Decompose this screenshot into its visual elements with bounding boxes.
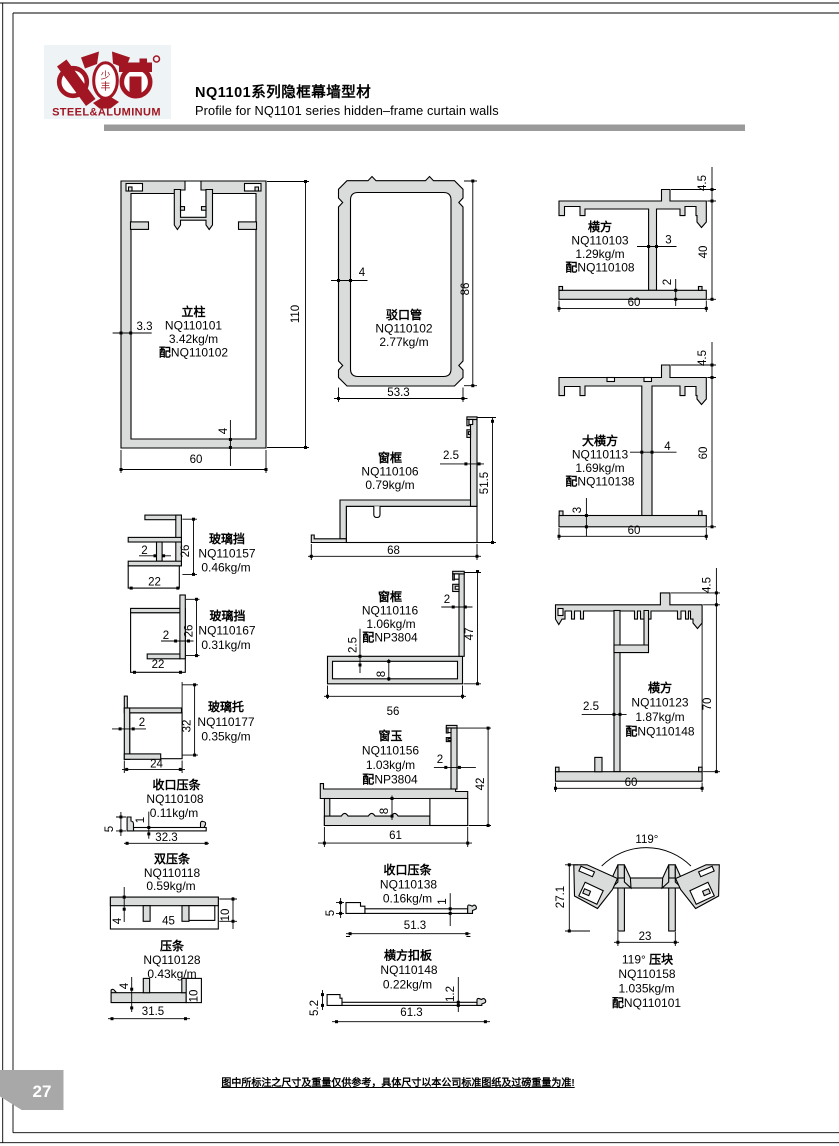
- svg-text:窗玉: 窗玉: [378, 728, 402, 743]
- svg-text:2: 2: [163, 630, 169, 642]
- svg-text:3.3: 3.3: [137, 321, 153, 333]
- svg-text:配NP3804: 配NP3804: [362, 630, 418, 645]
- svg-text:配NP3804: 配NP3804: [362, 772, 418, 787]
- svg-text:4.5: 4.5: [697, 175, 709, 191]
- svg-text:0.31kg/m: 0.31kg/m: [201, 638, 250, 652]
- svg-text:NQ110177: NQ110177: [197, 715, 254, 729]
- svg-text:驳口管: 驳口管: [386, 307, 422, 322]
- svg-text:119°: 119°: [635, 834, 658, 846]
- svg-text:47: 47: [464, 628, 476, 641]
- svg-text:1.2: 1.2: [445, 986, 457, 1002]
- svg-text:27: 27: [33, 1082, 52, 1101]
- svg-text:0.35kg/m: 0.35kg/m: [201, 730, 250, 744]
- svg-text:60: 60: [698, 447, 710, 460]
- svg-text:22: 22: [152, 659, 165, 671]
- svg-text:8: 8: [379, 808, 391, 814]
- svg-text:3: 3: [665, 235, 671, 247]
- svg-text:1.87kg/m: 1.87kg/m: [635, 710, 684, 724]
- svg-text:1: 1: [135, 817, 147, 823]
- svg-text:NQ110103: NQ110103: [571, 234, 628, 248]
- svg-text:0.22kg/m: 0.22kg/m: [383, 978, 432, 992]
- svg-text:51.3: 51.3: [404, 920, 426, 932]
- svg-text:横方扣板: 横方扣板: [384, 948, 433, 963]
- svg-text:NQ110108: NQ110108: [146, 792, 203, 806]
- svg-text:配NQ110108: 配NQ110108: [565, 260, 634, 275]
- svg-text:2.5: 2.5: [583, 701, 599, 713]
- svg-text:70: 70: [702, 698, 714, 711]
- svg-text:2.77kg/m: 2.77kg/m: [379, 335, 428, 349]
- svg-text:119° 压块: 119° 压块: [622, 952, 674, 967]
- svg-text:0.59kg/m: 0.59kg/m: [146, 879, 195, 893]
- svg-text:68: 68: [387, 545, 400, 557]
- svg-text:60: 60: [628, 297, 641, 309]
- svg-text:60: 60: [625, 777, 638, 789]
- svg-text:1: 1: [437, 898, 449, 904]
- svg-text:NQ110106: NQ110106: [361, 465, 418, 479]
- svg-text:图中所标注之尺寸及重量仅供参考，具体尺寸以本公司标准图纸及过: 图中所标注之尺寸及重量仅供参考，具体尺寸以本公司标准图纸及过磅重量为准!: [221, 1076, 574, 1089]
- svg-text:45: 45: [162, 916, 175, 928]
- svg-text:0.79kg/m: 0.79kg/m: [365, 478, 414, 492]
- svg-text:配NQ110148: 配NQ110148: [625, 724, 694, 739]
- svg-text:丰: 丰: [101, 80, 111, 93]
- svg-text:3: 3: [572, 507, 584, 513]
- svg-text:配NQ110138: 配NQ110138: [565, 474, 634, 489]
- svg-text:NQ110118: NQ110118: [144, 866, 201, 880]
- svg-text:1.035kg/m: 1.035kg/m: [618, 982, 674, 996]
- svg-text:61.3: 61.3: [400, 1007, 422, 1019]
- svg-text:1.29kg/m: 1.29kg/m: [575, 247, 624, 261]
- svg-text:3.42kg/m: 3.42kg/m: [169, 332, 218, 346]
- svg-text:玻璃挡: 玻璃挡: [209, 531, 245, 546]
- svg-text:NQ110167: NQ110167: [198, 624, 255, 638]
- svg-text:40: 40: [698, 246, 710, 259]
- svg-text:0.16kg/m: 0.16kg/m: [383, 892, 432, 906]
- svg-text:10: 10: [189, 990, 201, 1003]
- svg-text:4.5: 4.5: [697, 350, 709, 366]
- svg-text:27.1: 27.1: [555, 886, 567, 908]
- svg-text:4: 4: [359, 267, 366, 279]
- svg-text:56: 56: [387, 706, 400, 718]
- svg-text:61: 61: [389, 830, 402, 842]
- svg-text:22: 22: [148, 577, 161, 589]
- svg-text:NQ110116: NQ110116: [362, 604, 419, 618]
- svg-text:收口压条: 收口压条: [383, 862, 432, 877]
- svg-text:26: 26: [184, 625, 196, 638]
- svg-text:2: 2: [437, 754, 443, 766]
- svg-text:2.5: 2.5: [443, 450, 459, 462]
- svg-text:2: 2: [141, 545, 147, 557]
- svg-text:60: 60: [190, 454, 203, 466]
- svg-text:STEEL&ALUMINUM: STEEL&ALUMINUM: [52, 107, 161, 119]
- svg-text:5: 5: [104, 826, 116, 832]
- svg-text:4: 4: [218, 427, 230, 434]
- svg-text:32.3: 32.3: [155, 832, 177, 844]
- svg-text:NQ110157: NQ110157: [198, 547, 255, 561]
- svg-text:双压条: 双压条: [154, 851, 191, 866]
- svg-text:0.46kg/m: 0.46kg/m: [201, 561, 250, 575]
- svg-text:NQ110138: NQ110138: [380, 878, 437, 892]
- svg-text:1.03kg/m: 1.03kg/m: [366, 758, 415, 772]
- svg-text:31.5: 31.5: [142, 1006, 164, 1018]
- svg-text:NQ110128: NQ110128: [143, 953, 200, 967]
- svg-text:配NQ110102: 配NQ110102: [159, 345, 228, 360]
- svg-text:51.5: 51.5: [479, 472, 491, 494]
- svg-text:窗框: 窗框: [378, 450, 402, 465]
- svg-text:NQ1101系列隐框幕墙型材: NQ1101系列隐框幕墙型材: [195, 83, 371, 101]
- svg-text:收口压条: 收口压条: [152, 777, 201, 792]
- svg-text:横方: 横方: [648, 680, 672, 695]
- svg-text:窗框: 窗框: [378, 589, 402, 604]
- svg-text:0.11kg/m: 0.11kg/m: [150, 806, 198, 820]
- svg-text:4.5: 4.5: [702, 577, 714, 593]
- svg-text:2: 2: [662, 279, 674, 285]
- svg-text:配NQ110101: 配NQ110101: [612, 995, 681, 1010]
- svg-text:86: 86: [460, 283, 472, 296]
- svg-text:Profile for NQ1101 series hidd: Profile for NQ1101 series hidden–frame c…: [195, 103, 499, 118]
- svg-text:8: 8: [376, 671, 388, 677]
- svg-text:横方: 横方: [588, 219, 612, 234]
- svg-text:玻璃挡: 玻璃挡: [209, 608, 245, 623]
- svg-text:2.5: 2.5: [348, 637, 360, 653]
- svg-text:10: 10: [220, 909, 232, 922]
- svg-text:玻璃托: 玻璃托: [208, 699, 244, 714]
- svg-text:NQ110101: NQ110101: [165, 319, 222, 333]
- svg-text:4: 4: [664, 441, 671, 453]
- svg-text:5.2: 5.2: [309, 1000, 321, 1016]
- svg-text:5: 5: [325, 910, 337, 916]
- svg-text:NQ110158: NQ110158: [618, 967, 675, 981]
- svg-text:NQ110123: NQ110123: [631, 696, 688, 710]
- svg-text:26: 26: [180, 545, 192, 558]
- svg-text:1.69kg/m: 1.69kg/m: [575, 461, 624, 475]
- svg-text:32: 32: [182, 720, 194, 733]
- svg-text:立柱: 立柱: [181, 304, 205, 319]
- svg-text:24: 24: [150, 759, 163, 771]
- svg-text:大横方: 大横方: [582, 433, 618, 448]
- svg-text:42: 42: [475, 778, 487, 791]
- svg-text:4: 4: [112, 917, 124, 924]
- svg-text:NQ110148: NQ110148: [380, 963, 437, 977]
- svg-text:1.06kg/m: 1.06kg/m: [366, 617, 415, 631]
- svg-text:NQ110156: NQ110156: [362, 744, 419, 758]
- svg-text:2: 2: [139, 717, 145, 729]
- svg-text:2: 2: [444, 594, 450, 606]
- svg-text:110: 110: [290, 305, 302, 323]
- svg-text:NQ110102: NQ110102: [375, 322, 432, 336]
- svg-text:23: 23: [639, 931, 652, 943]
- svg-text:60: 60: [628, 525, 641, 537]
- svg-text:53.3: 53.3: [387, 387, 409, 399]
- svg-text:NQ110113: NQ110113: [572, 448, 629, 462]
- svg-text:4: 4: [119, 982, 131, 989]
- svg-text:压条: 压条: [160, 938, 185, 953]
- svg-text:少: 少: [101, 70, 111, 82]
